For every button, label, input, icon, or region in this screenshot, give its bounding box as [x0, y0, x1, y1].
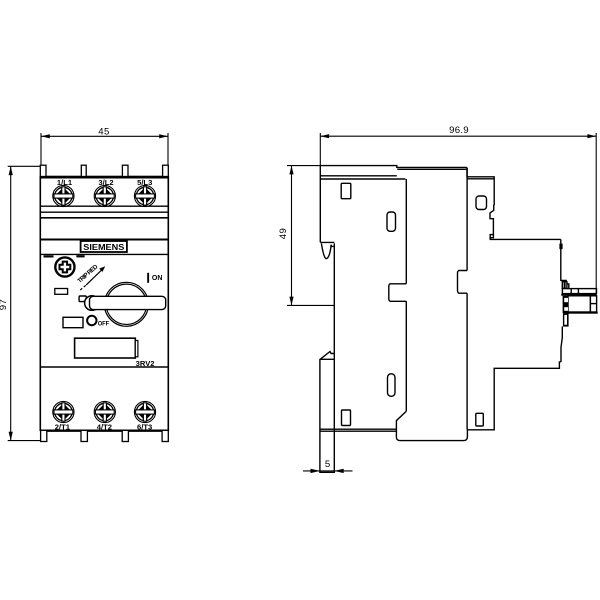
svg-text:5/L3: 5/L3: [137, 178, 152, 187]
svg-text:6/T3: 6/T3: [137, 422, 152, 431]
svg-text:96.9: 96.9: [449, 125, 469, 136]
svg-text:ON: ON: [152, 275, 163, 282]
svg-text:SIEMENS: SIEMENS: [83, 243, 125, 252]
svg-text:3/L2: 3/L2: [98, 178, 113, 187]
svg-text:5: 5: [325, 459, 330, 470]
svg-text:OFF: OFF: [98, 320, 110, 327]
svg-text:49: 49: [278, 228, 289, 239]
svg-text:3RV2: 3RV2: [136, 359, 155, 368]
svg-text:4/T2: 4/T2: [97, 422, 112, 431]
svg-text:97: 97: [0, 299, 9, 310]
svg-text:2/T1: 2/T1: [55, 422, 71, 431]
svg-text:1/L1: 1/L1: [57, 178, 73, 187]
